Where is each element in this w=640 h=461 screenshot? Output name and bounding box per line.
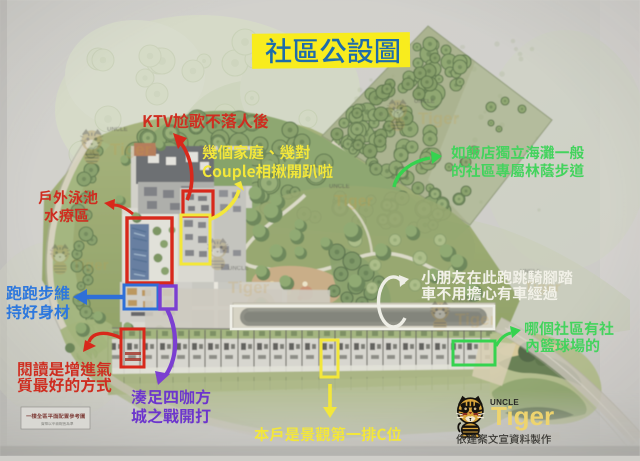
svg-text:Tiger: Tiger bbox=[491, 401, 554, 431]
